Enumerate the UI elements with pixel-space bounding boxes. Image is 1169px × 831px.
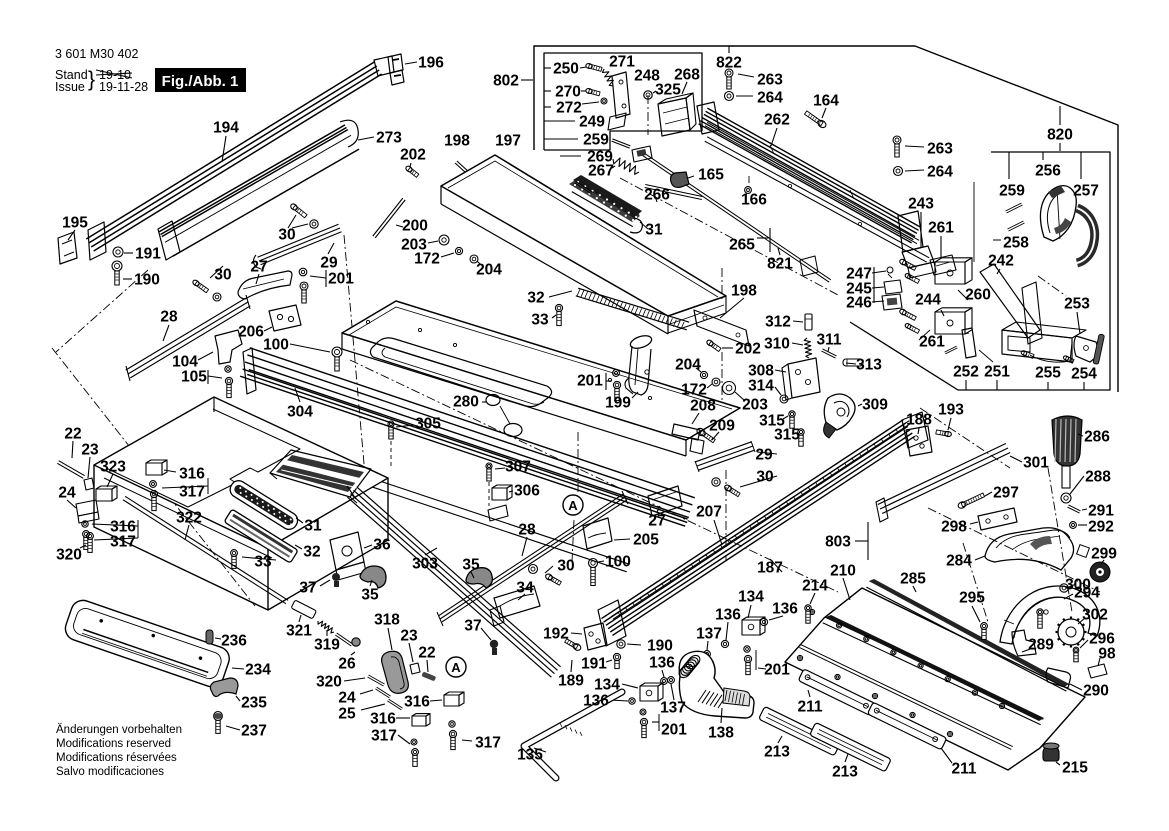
svg-text:192: 192 <box>543 626 569 643</box>
svg-text:323: 323 <box>100 459 126 476</box>
svg-text:211: 211 <box>797 699 822 716</box>
svg-text:211: 211 <box>951 761 976 778</box>
svg-text:295: 295 <box>959 590 985 607</box>
svg-text:285: 285 <box>900 571 926 588</box>
svg-text:202: 202 <box>400 147 426 164</box>
svg-text:258: 258 <box>1003 235 1029 252</box>
svg-text:820: 820 <box>1047 127 1073 144</box>
svg-text:302: 302 <box>1082 607 1108 624</box>
svg-text:199: 199 <box>605 395 631 412</box>
svg-text:205: 205 <box>633 532 659 549</box>
svg-text:254: 254 <box>1071 366 1097 383</box>
svg-text:28: 28 <box>518 522 536 539</box>
svg-text:189: 189 <box>558 673 584 690</box>
svg-text:822: 822 <box>716 55 742 72</box>
svg-text:32: 32 <box>527 290 544 307</box>
svg-text:164: 164 <box>813 93 839 110</box>
svg-text:303: 303 <box>412 556 438 573</box>
svg-text:213: 213 <box>764 744 790 761</box>
svg-text:30: 30 <box>756 469 773 486</box>
svg-text:290: 290 <box>1083 683 1109 700</box>
svg-text:246: 246 <box>846 295 872 312</box>
svg-text:136: 136 <box>583 693 609 710</box>
svg-text:196: 196 <box>418 55 444 72</box>
svg-text:190: 190 <box>134 272 160 289</box>
svg-text:261: 261 <box>919 334 945 351</box>
svg-text:202: 202 <box>735 341 761 358</box>
svg-text:318: 318 <box>374 612 400 629</box>
svg-text:256: 256 <box>1035 163 1061 180</box>
svg-text:187: 187 <box>757 560 783 577</box>
svg-text:23: 23 <box>400 628 418 645</box>
svg-text:A: A <box>451 660 461 675</box>
svg-text:297: 297 <box>993 485 1019 502</box>
svg-text:33: 33 <box>254 554 272 571</box>
svg-text:264: 264 <box>927 164 953 181</box>
svg-text:3 601 M30 402: 3 601 M30 402 <box>55 47 138 61</box>
svg-text:316: 316 <box>404 694 430 711</box>
svg-text:172: 172 <box>681 382 707 399</box>
svg-text:320: 320 <box>56 547 82 564</box>
svg-text:319: 319 <box>314 637 340 654</box>
svg-text:821: 821 <box>767 256 793 273</box>
svg-text:315: 315 <box>774 427 800 444</box>
svg-text:253: 253 <box>1064 296 1090 313</box>
svg-text:325: 325 <box>655 82 681 99</box>
svg-text:35: 35 <box>361 587 379 604</box>
svg-text:286: 286 <box>1084 429 1110 446</box>
svg-text:249: 249 <box>579 114 605 131</box>
svg-text:267: 267 <box>588 163 614 180</box>
svg-text:235: 235 <box>241 695 267 712</box>
svg-text:166: 166 <box>741 192 767 209</box>
svg-text:206: 206 <box>238 324 264 341</box>
svg-text:250: 250 <box>553 61 579 78</box>
svg-text:214: 214 <box>802 578 828 595</box>
svg-text:201: 201 <box>661 722 687 739</box>
svg-text:305: 305 <box>415 416 441 433</box>
svg-text:195: 195 <box>62 215 88 232</box>
svg-text:34: 34 <box>516 580 534 597</box>
svg-text:236: 236 <box>221 633 247 650</box>
svg-text:802: 802 <box>493 73 519 90</box>
svg-text:22: 22 <box>64 426 81 443</box>
svg-text:A: A <box>568 498 578 513</box>
svg-text:204: 204 <box>675 357 701 374</box>
svg-text:262: 262 <box>764 112 790 129</box>
svg-text:138: 138 <box>708 725 734 742</box>
svg-text:234: 234 <box>245 662 271 679</box>
svg-text:136: 136 <box>772 601 798 618</box>
svg-text:Modifications reserved: Modifications reserved <box>56 738 171 750</box>
svg-text:}: } <box>88 68 95 91</box>
svg-text:19-11-28: 19-11-28 <box>99 80 148 94</box>
svg-text:30: 30 <box>278 227 295 244</box>
svg-text:252: 252 <box>953 364 979 381</box>
svg-text:272: 272 <box>556 100 582 117</box>
svg-text:311: 311 <box>816 332 841 349</box>
svg-text:31: 31 <box>645 222 663 239</box>
svg-text:191: 191 <box>135 246 161 263</box>
svg-text:255: 255 <box>1035 365 1061 382</box>
svg-text:307: 307 <box>505 459 531 476</box>
svg-text:134: 134 <box>738 589 764 606</box>
svg-text:215: 215 <box>1062 760 1088 777</box>
svg-text:193: 193 <box>938 402 964 419</box>
svg-text:31: 31 <box>304 518 322 535</box>
svg-text:172: 172 <box>414 251 440 268</box>
svg-text:137: 137 <box>696 626 722 643</box>
svg-text:24: 24 <box>338 690 356 707</box>
svg-text:203: 203 <box>742 397 768 414</box>
svg-text:299: 299 <box>1091 546 1117 563</box>
svg-text:317: 317 <box>110 534 136 551</box>
svg-text:22: 22 <box>418 645 435 662</box>
svg-text:36: 36 <box>373 537 391 554</box>
svg-text:316: 316 <box>370 711 396 728</box>
svg-text:259: 259 <box>999 183 1025 200</box>
svg-text:284: 284 <box>946 553 972 570</box>
svg-text:35: 35 <box>462 557 480 574</box>
svg-text:266: 266 <box>644 187 670 204</box>
svg-text:24: 24 <box>58 485 76 502</box>
svg-text:Änderungen vorbehalten: Änderungen vorbehalten <box>56 724 182 736</box>
svg-text:37: 37 <box>464 618 481 635</box>
svg-text:198: 198 <box>444 133 470 150</box>
svg-text:304: 304 <box>287 404 313 421</box>
svg-text:Issue: Issue <box>55 80 85 94</box>
svg-text:803: 803 <box>825 534 851 551</box>
svg-text:Modifications réservées: Modifications réservées <box>56 752 177 764</box>
svg-text:243: 243 <box>908 196 934 213</box>
svg-text:201: 201 <box>577 373 603 390</box>
svg-text:263: 263 <box>927 141 953 158</box>
svg-text:29: 29 <box>755 447 773 464</box>
svg-text:23: 23 <box>81 442 99 459</box>
svg-text:137: 137 <box>660 700 686 717</box>
svg-text:134: 134 <box>594 677 620 694</box>
svg-text:237: 237 <box>241 723 267 740</box>
svg-text:191: 191 <box>581 656 607 673</box>
svg-text:136: 136 <box>649 655 675 672</box>
svg-text:37: 37 <box>299 580 316 597</box>
svg-text:322: 322 <box>176 510 202 527</box>
svg-text:29: 29 <box>320 255 338 272</box>
svg-text:263: 263 <box>757 72 783 89</box>
svg-text:280: 280 <box>453 394 479 411</box>
svg-text:244: 244 <box>915 292 941 309</box>
svg-text:208: 208 <box>690 398 716 415</box>
svg-text:Salvo modificaciones: Salvo modificaciones <box>56 766 164 778</box>
svg-text:301: 301 <box>1023 455 1049 472</box>
svg-text:264: 264 <box>757 90 783 107</box>
svg-text:25: 25 <box>338 706 356 723</box>
svg-text:190: 190 <box>647 638 673 655</box>
svg-text:188: 188 <box>906 412 932 429</box>
svg-text:136: 136 <box>715 607 741 624</box>
svg-text:Fig./Abb. 1: Fig./Abb. 1 <box>162 73 239 90</box>
svg-text:27: 27 <box>250 259 267 276</box>
svg-text:210: 210 <box>830 563 856 580</box>
svg-text:251: 251 <box>984 364 1010 381</box>
svg-text:200: 200 <box>402 218 428 235</box>
svg-text:30: 30 <box>214 267 231 284</box>
svg-text:30: 30 <box>557 558 574 575</box>
svg-text:292: 292 <box>1088 519 1114 536</box>
svg-text:105: 105 <box>181 369 207 386</box>
svg-text:207: 207 <box>696 504 722 521</box>
svg-text:198: 198 <box>731 283 757 300</box>
svg-text:204: 204 <box>476 262 502 279</box>
svg-text:317: 317 <box>179 484 205 501</box>
svg-text:271: 271 <box>609 54 635 71</box>
svg-text:209: 209 <box>709 418 735 435</box>
svg-text:194: 194 <box>213 120 239 137</box>
svg-text:197: 197 <box>495 133 521 150</box>
svg-text:313: 313 <box>856 357 882 374</box>
svg-text:273: 273 <box>376 130 402 147</box>
svg-text:32: 32 <box>303 544 320 561</box>
svg-text:288: 288 <box>1085 469 1111 486</box>
svg-text:135: 135 <box>517 747 543 764</box>
svg-text:309: 309 <box>862 397 888 414</box>
svg-text:320: 320 <box>316 674 342 691</box>
svg-text:321: 321 <box>286 623 312 640</box>
svg-text:300: 300 <box>1065 577 1091 594</box>
svg-text:27: 27 <box>648 513 665 530</box>
svg-text:100: 100 <box>605 554 631 571</box>
svg-text:306: 306 <box>514 483 540 500</box>
svg-text:242: 242 <box>988 253 1014 270</box>
svg-text:289: 289 <box>1028 637 1054 654</box>
svg-text:165: 165 <box>698 167 724 184</box>
svg-text:317: 317 <box>475 735 501 752</box>
svg-text:26: 26 <box>338 656 356 673</box>
svg-text:98: 98 <box>1098 646 1116 663</box>
svg-text:298: 298 <box>941 519 967 536</box>
svg-text:28: 28 <box>160 309 178 326</box>
svg-text:260: 260 <box>965 287 991 304</box>
svg-text:201: 201 <box>764 662 790 679</box>
svg-text:317: 317 <box>371 728 397 745</box>
svg-text:100: 100 <box>263 337 289 354</box>
svg-text:213: 213 <box>832 764 858 781</box>
svg-text:201: 201 <box>328 271 354 288</box>
svg-text:312: 312 <box>765 314 791 331</box>
svg-text:310: 310 <box>764 336 790 353</box>
svg-text:259: 259 <box>583 132 609 149</box>
svg-text:316: 316 <box>179 466 205 483</box>
svg-text:257: 257 <box>1073 183 1099 200</box>
svg-text:314: 314 <box>748 378 774 395</box>
svg-text:265: 265 <box>729 237 755 254</box>
svg-text:33: 33 <box>531 312 549 329</box>
svg-text:270: 270 <box>555 84 581 101</box>
svg-text:291: 291 <box>1088 503 1114 520</box>
svg-text:261: 261 <box>928 220 954 237</box>
